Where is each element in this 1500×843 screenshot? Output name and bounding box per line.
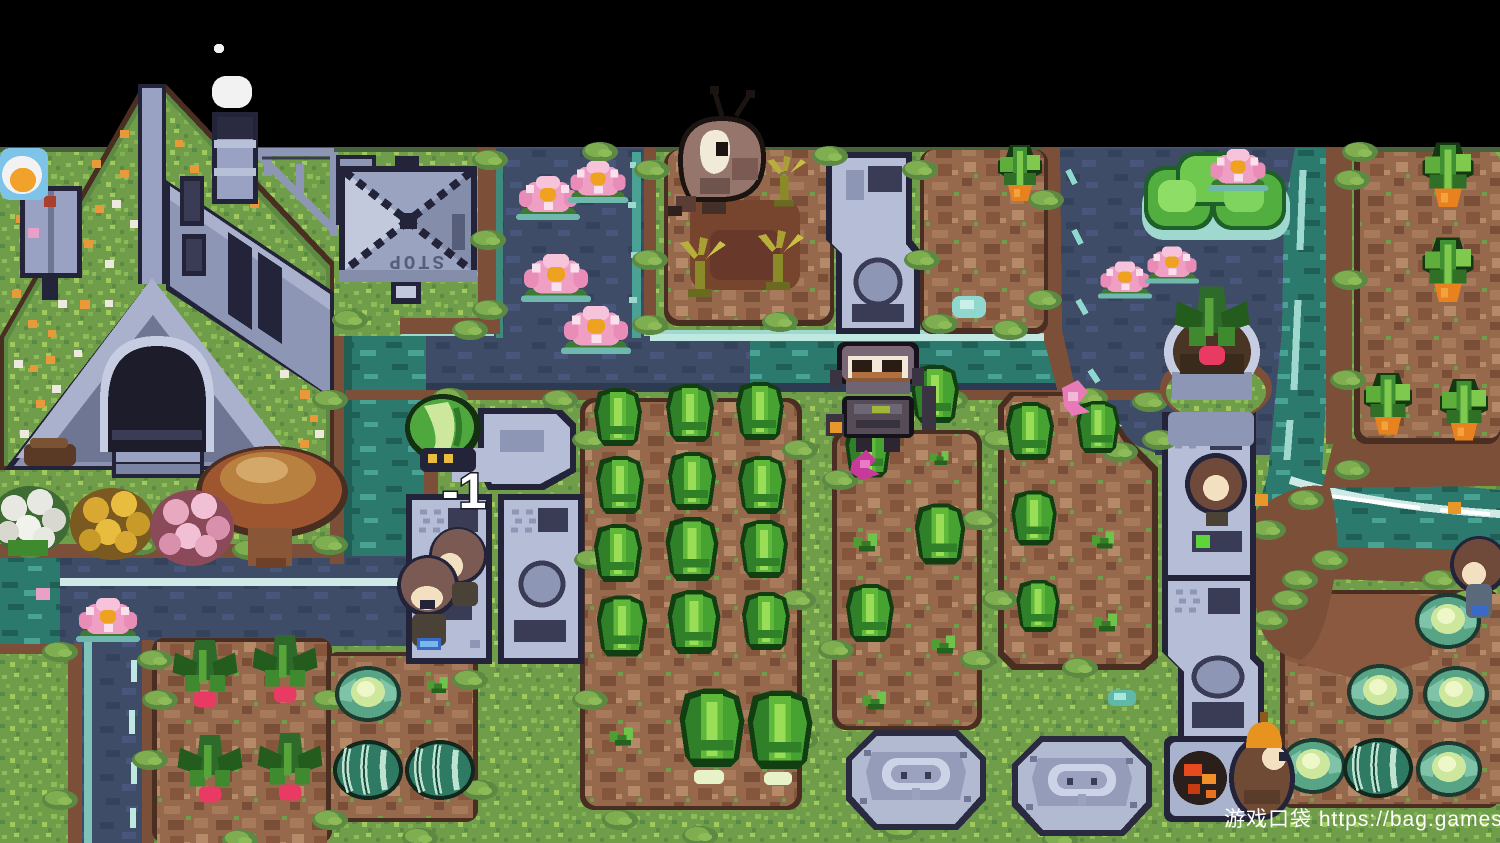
svg-text:-1: -1 [442,463,486,519]
svg-text:STOP: STOP [386,250,444,272]
